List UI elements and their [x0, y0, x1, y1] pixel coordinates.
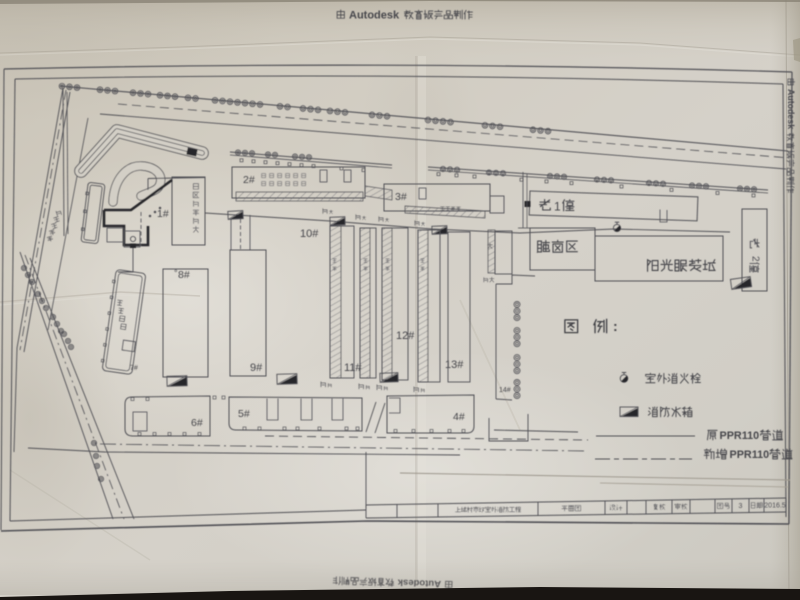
svg-text:5#: 5# [238, 408, 250, 420]
svg-text:1: 1 [554, 200, 561, 214]
svg-text:7#: 7# [130, 365, 138, 372]
svg-text:4#: 4# [453, 411, 465, 423]
svg-text:8#: 8# [178, 269, 190, 281]
svg-text:10#: 10# [300, 228, 319, 240]
svg-text:2016.5: 2016.5 [764, 503, 786, 510]
svg-text:6#: 6# [191, 417, 203, 429]
svg-text:Autodesk: Autodesk [349, 10, 400, 22]
svg-text:9#: 9# [250, 362, 263, 374]
svg-text:3: 3 [739, 503, 743, 510]
svg-text:2#: 2# [243, 174, 255, 186]
svg-text:PPR110: PPR110 [720, 430, 760, 442]
svg-text:3#: 3# [395, 191, 407, 203]
svg-text:12#: 12# [396, 330, 415, 342]
svg-text:2: 2 [750, 256, 761, 262]
svg-text:PPR110: PPR110 [730, 449, 770, 461]
svg-text:11#: 11# [344, 362, 362, 374]
svg-text::: : [613, 318, 618, 334]
svg-text:1#: 1# [157, 208, 169, 220]
svg-text:Autodesk: Autodesk [786, 89, 796, 129]
svg-text:14#: 14# [499, 387, 511, 394]
